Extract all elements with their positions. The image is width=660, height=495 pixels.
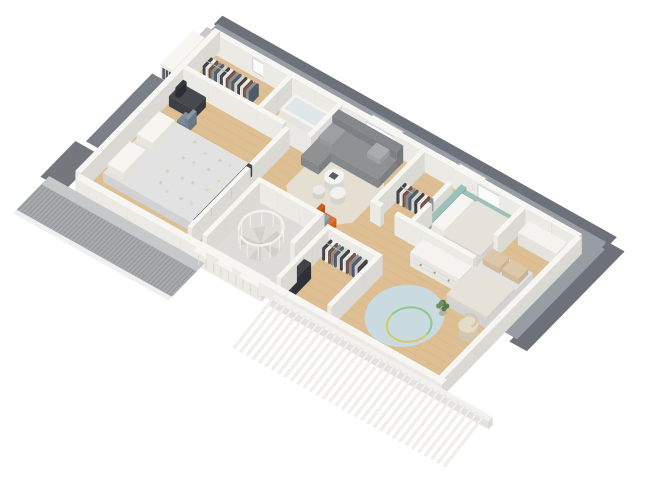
wall-closet-top-face <box>379 255 383 279</box>
closet2-clothes-garment-face <box>414 201 416 214</box>
wall-bedroom2-kids-a-face <box>381 204 384 228</box>
dresser-knob <box>448 279 450 281</box>
closet-clothes-garment-face <box>334 255 336 268</box>
closet2-clothes-garment-face <box>400 193 402 206</box>
dresser-knob <box>420 264 422 266</box>
screenshot-root <box>0 0 660 495</box>
closet-clothes-garment-face <box>346 261 348 274</box>
closet2-clothes-garment-face <box>397 191 399 204</box>
wall-bedroom2-kids-a-face <box>374 204 380 228</box>
plant-leaves <box>441 306 446 311</box>
dresser-knob <box>434 272 436 274</box>
closet-clothes-garment-face <box>331 253 333 266</box>
plant-leaves <box>436 303 441 308</box>
closet-clothes-garment-face <box>343 260 345 273</box>
closet-clothes-garment-face <box>349 263 351 276</box>
floor-plan-render <box>0 0 660 495</box>
wall-bedroom2-hall-face <box>370 201 374 223</box>
closet2-clothes-garment-face <box>405 196 407 209</box>
closet-clothes-garment-face <box>325 250 327 263</box>
closet-clothes-garment-face <box>352 265 354 278</box>
closet-clothes-garment-face <box>340 258 342 271</box>
closet-clothes-garment-face <box>337 256 339 269</box>
closet-clothes-garment-face <box>322 248 324 261</box>
closet2-clothes-garment-face <box>408 198 410 211</box>
closet2-clothes-garment-face <box>411 200 413 213</box>
closet2-clothes-garment-face <box>403 195 405 208</box>
closet-clothes-garment-face <box>328 251 330 264</box>
